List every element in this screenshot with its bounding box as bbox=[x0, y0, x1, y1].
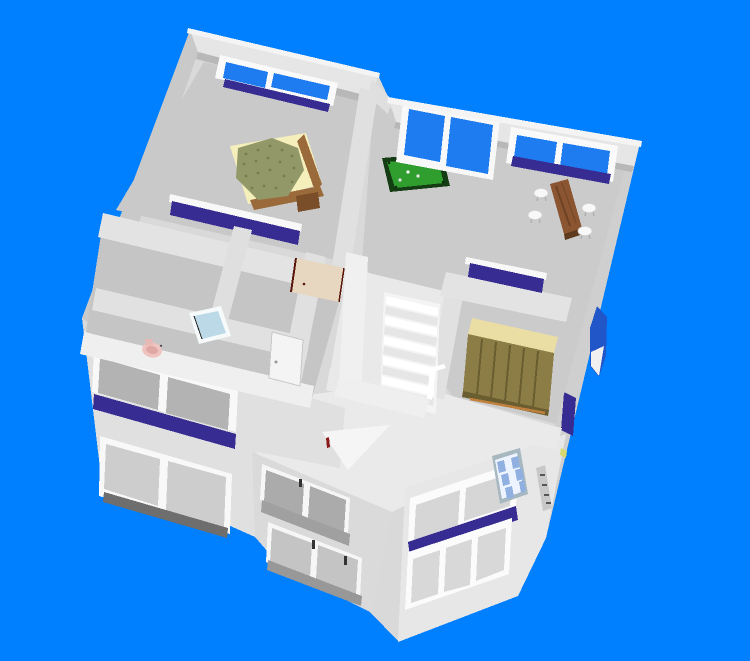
stool-seat bbox=[582, 203, 596, 212]
interior-door bbox=[269, 332, 303, 386]
pocket bbox=[442, 181, 444, 183]
stool-seat bbox=[534, 188, 548, 197]
pocket bbox=[388, 162, 390, 164]
window-handle bbox=[312, 540, 315, 549]
3d-view-canvas[interactable] bbox=[0, 0, 750, 661]
door-handle bbox=[303, 283, 306, 286]
pocket bbox=[395, 186, 397, 188]
billiard-ball bbox=[406, 170, 409, 173]
window-pane bbox=[446, 117, 493, 174]
stool-seat bbox=[578, 226, 592, 235]
downpipe-bracket bbox=[546, 502, 551, 504]
window-handle bbox=[344, 556, 347, 565]
door-leaf-white bbox=[269, 332, 303, 386]
billiard-ball bbox=[398, 178, 401, 181]
downpipe-bracket bbox=[542, 484, 547, 486]
door-handle bbox=[275, 361, 278, 364]
downpipe-bracket bbox=[544, 494, 549, 496]
window-handle bbox=[299, 479, 302, 487]
floor-plan-3d-render bbox=[0, 0, 750, 661]
downpipe-bracket bbox=[540, 474, 545, 476]
billiard-ball bbox=[416, 174, 419, 177]
window-pane bbox=[404, 109, 445, 162]
stool-seat bbox=[528, 210, 542, 219]
